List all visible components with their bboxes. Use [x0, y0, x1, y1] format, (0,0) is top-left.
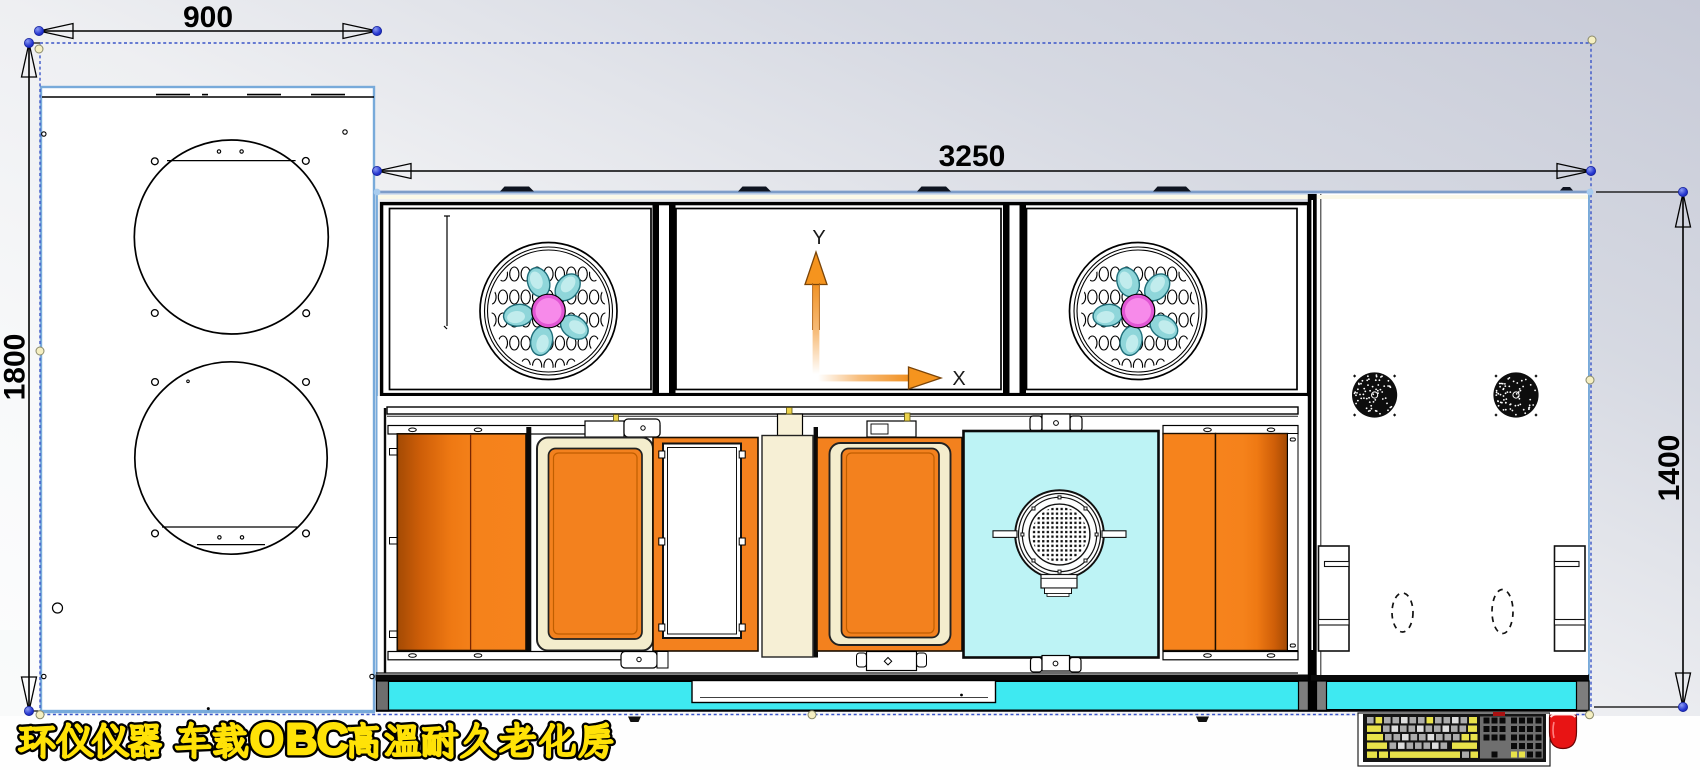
svg-text:900: 900: [183, 1, 233, 34]
svg-text:1400: 1400: [1653, 435, 1686, 502]
svg-text:Y: Y: [812, 227, 825, 249]
svg-text:1800: 1800: [0, 334, 32, 401]
svg-text:X: X: [952, 368, 965, 390]
svg-text:3250: 3250: [939, 140, 1006, 173]
